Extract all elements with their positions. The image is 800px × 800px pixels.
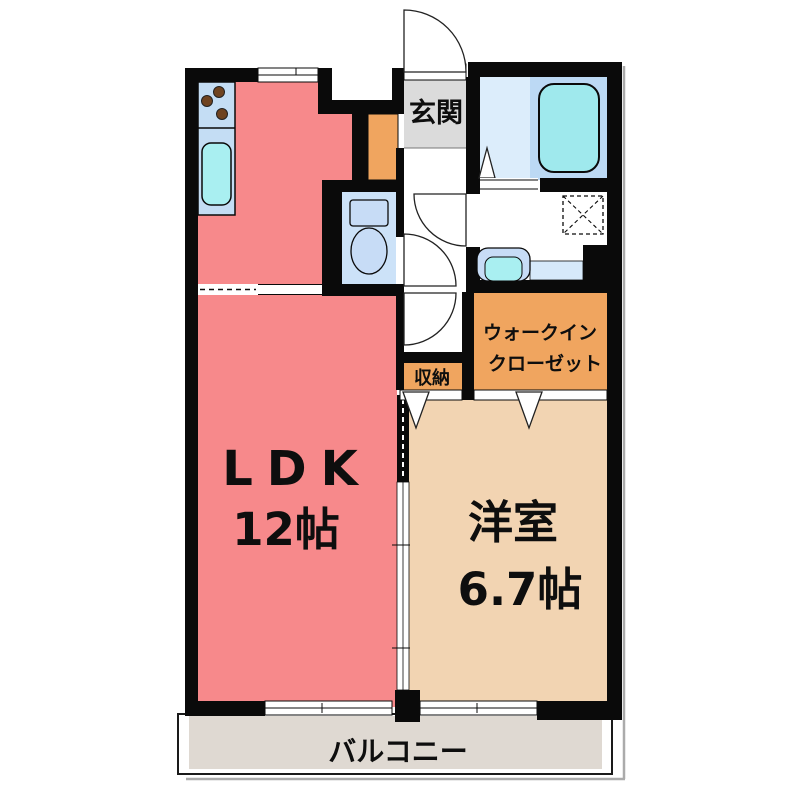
stove-burner-icon (217, 109, 228, 120)
window-western-balcony (420, 701, 537, 715)
wall-hall-right-upper (466, 77, 480, 194)
storage-label: 収納 (414, 367, 450, 389)
wall-top-kitchen-left (185, 68, 258, 82)
wall-entrance-pier (392, 68, 404, 114)
walk-in-closet-label-line1: ウォークイン (483, 322, 597, 344)
wall-toilet-top (342, 180, 404, 192)
washbasin-icon (477, 248, 530, 281)
wall-storage-left (396, 363, 404, 390)
kitchen-living-opening (198, 284, 322, 295)
floor-plan: 玄関 LDK 12帖 洋室 6.7帖 ウォークイン クローゼット 収納 バルコニ… (0, 0, 800, 800)
wall-hall-left-upper (396, 148, 404, 237)
toilet-icon (350, 200, 388, 274)
wall-toilet-bottom (322, 284, 404, 296)
wall-bottom-left (185, 701, 265, 716)
balcony-label: バルコニー (328, 735, 467, 768)
shoe-cabinet (368, 114, 398, 180)
room-ldk-kitchen (235, 82, 322, 285)
window-ldk-balcony (265, 701, 392, 715)
washstand-counter (530, 261, 583, 280)
entrance-label: 玄関 (409, 97, 463, 129)
wall-right (607, 62, 622, 720)
room-ldk-living (198, 295, 397, 707)
kitchen-counter (198, 82, 235, 215)
wall-toilet-left (322, 180, 342, 284)
stove-burner-icon (202, 96, 213, 107)
room-western (409, 398, 607, 707)
wall-left (185, 68, 198, 716)
window-kitchen-top (258, 68, 318, 82)
wall-bottom-center-pier (395, 690, 420, 722)
bathtub-icon (539, 84, 599, 172)
wall-top-right (468, 62, 607, 77)
kitchen-sink-icon (202, 143, 231, 205)
western-room-label: 洋室 (468, 496, 558, 549)
wall-washroom-filler (583, 245, 607, 280)
wall-alcove (318, 100, 404, 114)
ldk-size-label: 12帖 (232, 503, 340, 556)
wall-storage-top (396, 352, 462, 363)
entrance-door-arc (404, 10, 466, 72)
walk-in-closet-label-line2: クローゼット (488, 352, 602, 375)
ldk-label: LDK (222, 441, 372, 497)
bath-door-sill (480, 178, 538, 192)
floor-plan-drawing: 玄関 LDK 12帖 洋室 6.7帖 ウォークイン クローゼット 収納 バルコニ… (0, 0, 800, 800)
wall-washroom-closet (474, 280, 607, 293)
wall-storage-closet (462, 292, 474, 400)
stove-burner-icon (214, 87, 225, 98)
wall-bath-bottom (540, 178, 607, 192)
wall-bottom-right (537, 701, 622, 720)
wall-ldk-shoebox (352, 114, 368, 180)
wall-hall-left-lower (396, 286, 404, 363)
western-room-size-label: 6.7帖 (458, 563, 583, 616)
room-ldk-kitchen-lower (198, 215, 235, 285)
ldk-door-arc (404, 293, 456, 345)
room-ldk-kitchen-step (322, 114, 352, 180)
